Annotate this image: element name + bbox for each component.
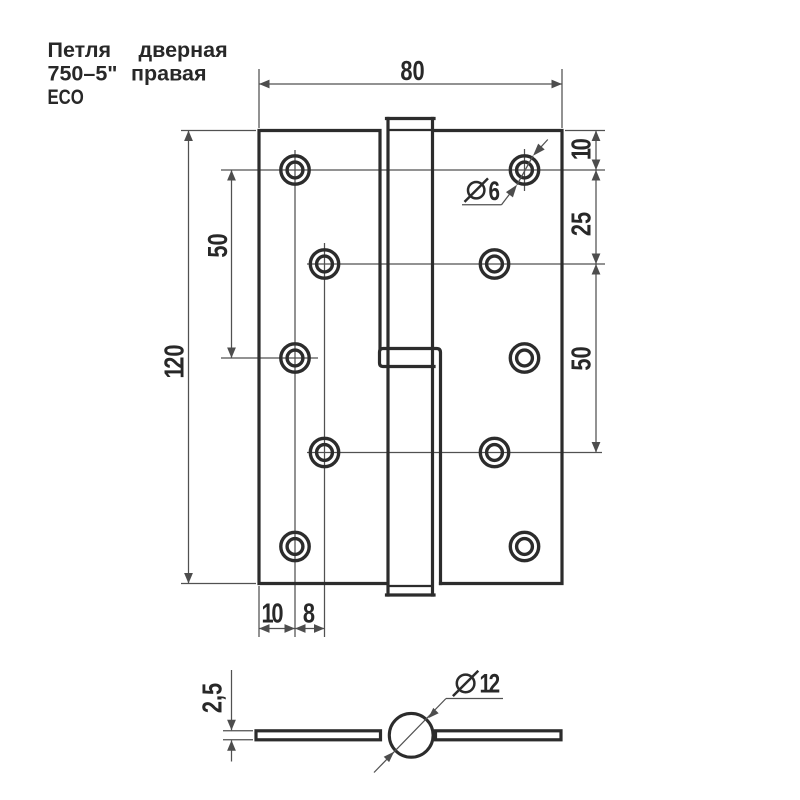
svg-text:25: 25 <box>566 212 597 236</box>
svg-text:50: 50 <box>566 346 597 370</box>
svg-text:8: 8 <box>303 598 315 629</box>
svg-text:50: 50 <box>202 233 233 257</box>
svg-text:80: 80 <box>400 55 424 86</box>
svg-text:10: 10 <box>262 598 284 629</box>
svg-text:750–5": 750–5" <box>48 62 118 86</box>
svg-text:12: 12 <box>480 669 501 699</box>
svg-text:10: 10 <box>566 138 597 160</box>
svg-text:2,5: 2,5 <box>197 683 228 713</box>
svg-text:ECO: ECO <box>48 86 84 109</box>
svg-text:Петля: Петля <box>48 38 112 62</box>
svg-text:дверная: дверная <box>139 38 228 62</box>
svg-text:120: 120 <box>159 344 190 378</box>
svg-text:6: 6 <box>489 177 500 207</box>
svg-text:правая: правая <box>131 62 207 86</box>
